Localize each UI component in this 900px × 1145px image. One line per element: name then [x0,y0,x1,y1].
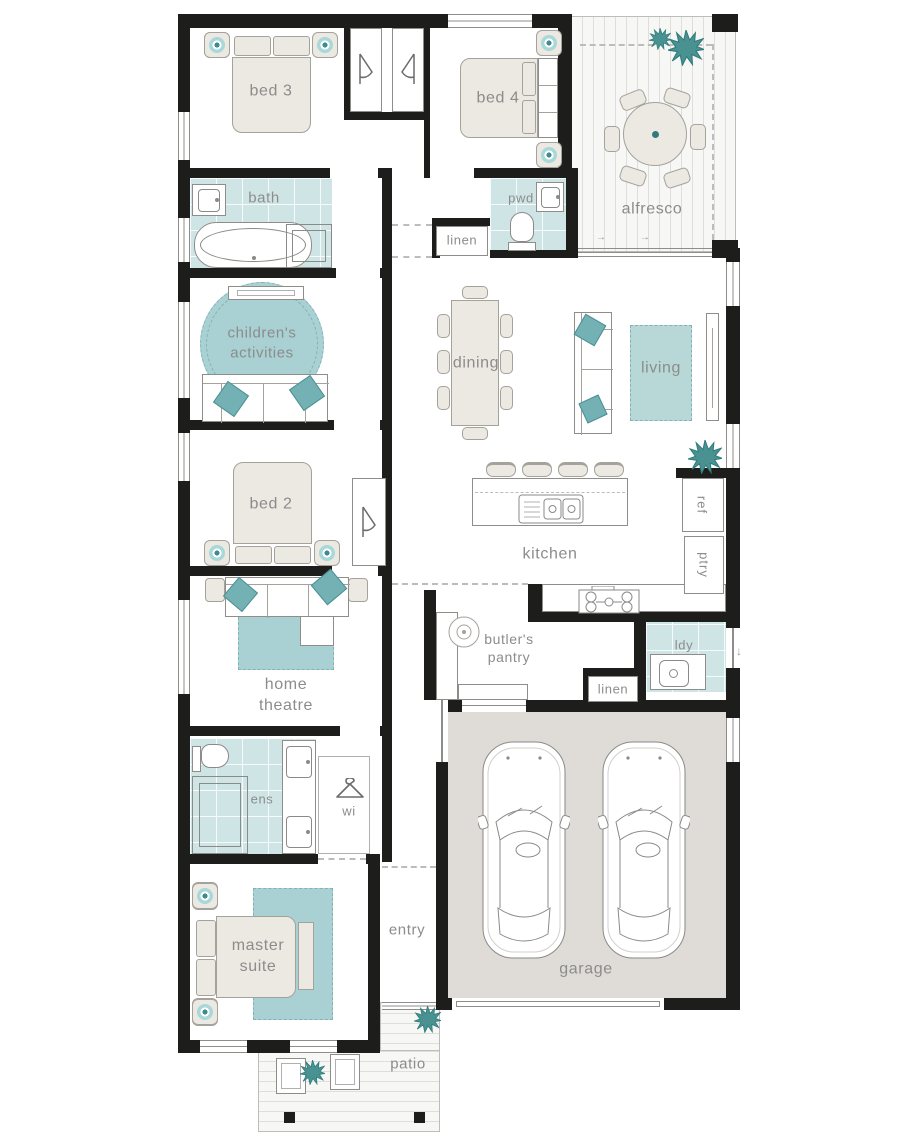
kitchen-sink [518,494,584,524]
window [178,112,190,160]
toilet [201,744,229,768]
shower [192,776,248,854]
floor-plan: → → ↓ [0,0,900,1145]
chair [462,427,488,440]
door-opening [336,268,380,278]
door-opening [430,168,474,178]
slider-arrow-icon: → [596,232,606,243]
wall-segment [346,112,430,120]
pillow [522,62,536,96]
stool [594,462,624,477]
door-opening [330,168,378,178]
chair [437,386,450,410]
wall-segment [424,28,430,168]
pillow [274,546,311,564]
outdoor-chair [330,1054,360,1090]
door-swing-arrow-icon: ↓ [736,644,742,658]
window [726,262,740,306]
toilet-cistern [192,746,201,772]
pillow [522,100,536,134]
wi-label: wi [342,804,355,821]
laundry-bench [650,654,706,690]
home-theatre-label: home theatre [259,675,313,717]
wall-segment [368,862,380,1053]
chair-inner [335,1059,355,1085]
window [726,424,740,468]
wall-segment [712,14,738,32]
bed4-label: bed 4 [476,89,519,110]
door-opening [462,700,526,712]
vanity [192,184,226,216]
wall-segment [424,590,436,700]
kitchen-label: kitchen [523,545,578,566]
chair-inner [281,1063,301,1089]
tv-unit [706,313,719,421]
ceiling-light-icon [536,142,562,168]
childrens-activities-label: children's activities [228,324,297,363]
chair [500,350,513,374]
garage-door-panel [456,1001,660,1007]
tap-icon [306,830,310,834]
linen-hall-label: linen [447,233,477,250]
ref-label: ref [693,496,710,514]
pillow [196,920,216,957]
toilet [510,212,534,242]
entry-label: entry [389,920,425,940]
coat-hanger-icon [334,778,366,802]
door-opening [334,420,380,430]
ceiling-light-icon [192,999,218,1025]
garage-label: garage [559,960,612,981]
shower-inner [292,230,326,262]
door-opening [332,566,378,576]
pillow [273,36,310,56]
master-suite-label: master suite [232,936,285,978]
plant-icon [300,1060,325,1085]
stool [486,462,516,477]
wardrobe [392,28,424,112]
sliding-door-track [578,256,712,257]
window [178,433,190,481]
ptry-label: ptry [695,552,712,578]
tap-icon [306,760,310,764]
bed3-label: bed 3 [249,82,292,103]
pillow [234,36,271,56]
armchair [348,578,368,602]
window [290,1040,337,1053]
dashed-bulkhead [392,224,432,226]
ceiling-light-icon [192,883,218,909]
door-opening [340,726,380,736]
stool [558,462,588,477]
built-in-robe [538,58,558,138]
stool [522,462,552,477]
wall-segment [490,250,578,258]
tv-cabinet-inner [237,290,295,296]
window [178,218,190,262]
window [726,718,740,762]
wall-segment [528,584,542,622]
door-swing-icon [398,51,418,87]
window [200,1040,247,1053]
patio-post [414,1112,425,1123]
window [448,14,532,28]
chair [690,124,706,150]
shower-inner [199,783,241,847]
window [178,600,190,694]
wall-segment [566,168,578,258]
toilet-cistern [508,242,536,251]
dashed-bulkhead [392,583,528,585]
alfresco-label: alfresco [622,200,683,221]
ceiling-light-icon [204,540,230,566]
dashed-bulkhead [318,858,366,860]
door-swing-icon [356,51,376,87]
chair [500,314,513,338]
wall-segment [583,668,643,676]
tv-cabinet [228,286,304,300]
door-swing-icon [359,504,379,540]
living-label: living [641,359,681,380]
car [478,736,570,964]
table-centerpiece [652,131,659,138]
ceiling-light-icon [312,32,338,58]
pantry-bench [458,684,528,700]
patio-post [284,1112,295,1123]
window [178,302,190,398]
pillow [196,959,216,996]
chair [500,386,513,410]
chair [604,126,620,152]
pillow [235,546,272,564]
shower [286,224,332,268]
bed2-label: bed 2 [249,495,292,516]
dashed-bulkhead [382,866,436,868]
ceiling-light-icon [536,30,562,56]
alfresco-dashed-line [712,44,714,240]
vanity [536,182,564,212]
bath-label: bath [248,188,280,208]
linen-laundry-label: linen [598,682,628,699]
plant-icon [414,1006,441,1033]
sliding-door-track [578,252,712,253]
plant-icon [668,30,704,66]
dining-label: dining [453,354,499,375]
chair [437,350,450,374]
ceiling-light-icon [204,32,230,58]
pwd-label: pwd [508,191,534,208]
armchair [205,578,225,602]
ldy-label: ldy [675,638,693,655]
wardrobe [350,28,382,112]
butlers-pantry-label: butler's pantry [484,630,534,666]
patio-label: patio [390,1054,426,1074]
bed-end-bench [298,922,314,990]
sink-drain [669,669,678,678]
car [598,736,690,964]
round-sink [446,614,482,650]
ens-label: ens [251,792,274,809]
slider-arrow-icon: → [640,232,650,243]
chaise [300,616,334,646]
door-step-line [462,705,526,706]
wardrobe [352,478,386,566]
dashed-bulkhead [392,256,432,258]
door-leaf [732,628,734,668]
chair [462,286,488,299]
plant-icon [688,440,722,474]
wall-segment [432,218,490,226]
cooktop [578,586,640,614]
sliding-door-track [578,248,712,249]
chair [437,314,450,338]
ceiling-light-icon [314,540,340,566]
